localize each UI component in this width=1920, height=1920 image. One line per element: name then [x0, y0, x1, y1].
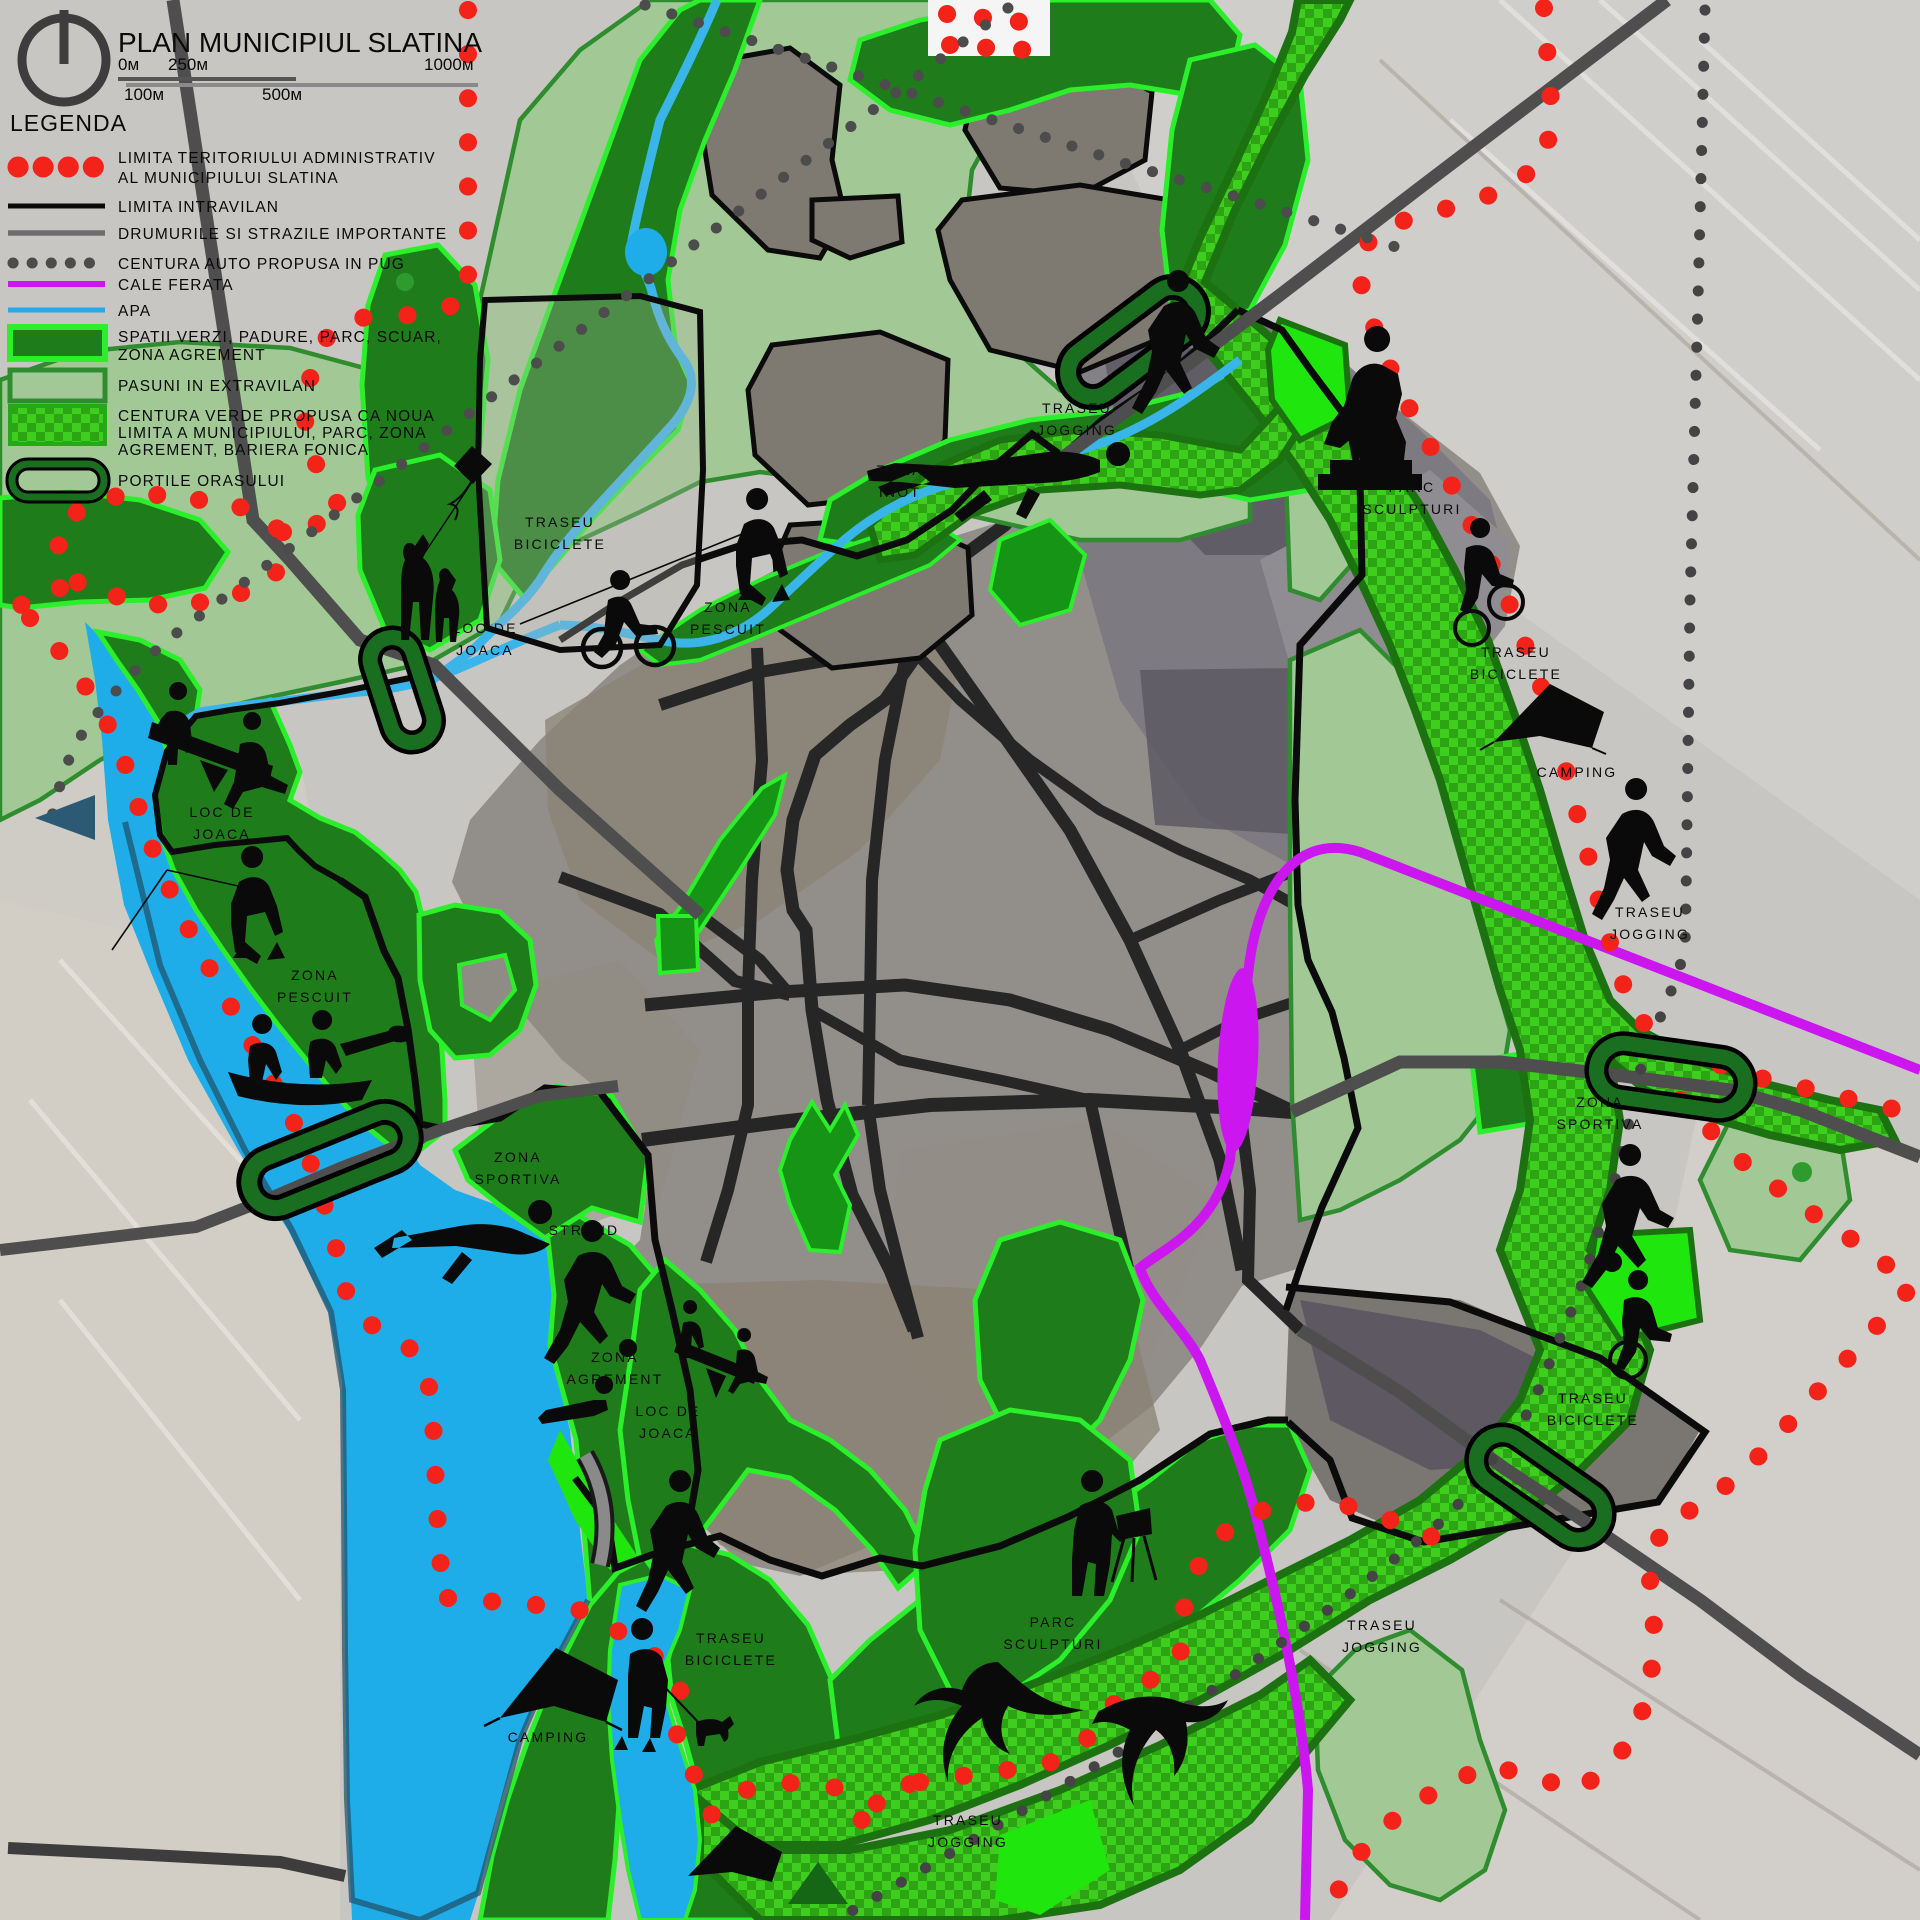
svg-text:CAMPING: CAMPING	[508, 1729, 589, 1745]
svg-text:SPATII VERZI, PADURE, PARC, SC: SPATII VERZI, PADURE, PARC, SCUAR,	[118, 329, 442, 346]
svg-text:JOACA: JOACA	[456, 642, 514, 658]
svg-text:AL MUNICIPIULUI SLATINA: AL MUNICIPIULUI SLATINA	[118, 170, 339, 187]
svg-text:PASUNI IN EXTRAVILAN: PASUNI IN EXTRAVILAN	[118, 378, 316, 395]
svg-text:PESCUIT: PESCUIT	[690, 621, 766, 637]
svg-text:LOC DE: LOC DE	[189, 804, 254, 820]
svg-text:DRUMURILE SI STRAZILE IMPORTAN: DRUMURILE SI STRAZILE IMPORTANTE	[118, 226, 447, 243]
svg-text:LIMITA TERITORIULUI ADMINISTRA: LIMITA TERITORIULUI ADMINISTRATIV	[118, 150, 436, 167]
svg-text:CENTURA AUTO PROPUSA IN PUG: CENTURA AUTO PROPUSA IN PUG	[118, 256, 405, 273]
svg-text:JOGGING: JOGGING	[1610, 926, 1690, 942]
svg-text:ZONA AGREMENT: ZONA AGREMENT	[118, 347, 266, 364]
svg-text:100ᴍ: 100ᴍ	[124, 85, 164, 104]
svg-text:BICICLETE: BICICLETE	[685, 1652, 777, 1668]
svg-text:STRAND: STRAND	[549, 1222, 620, 1238]
svg-text:CENTURA VERDE PROPUSA CA NOUA: CENTURA VERDE PROPUSA CA NOUA	[118, 408, 435, 425]
svg-text:SCULPTURI: SCULPTURI	[1362, 501, 1461, 517]
svg-text:SPORTIVA: SPORTIVA	[1556, 1116, 1643, 1132]
svg-text:TRASEU: TRASEU	[696, 1630, 766, 1646]
svg-text:PARC: PARC	[1030, 1614, 1077, 1630]
svg-text:INOT: INOT	[879, 484, 921, 500]
svg-text:BICICLETE: BICICLETE	[514, 536, 606, 552]
svg-text:0ᴍ: 0ᴍ	[118, 55, 139, 74]
svg-text:JOGGING: JOGGING	[928, 1834, 1008, 1850]
svg-text:LOC DE: LOC DE	[452, 620, 517, 636]
svg-text:TRASEU: TRASEU	[1615, 904, 1685, 920]
svg-text:TRASEU: TRASEU	[1481, 644, 1551, 660]
svg-text:SCULPTURI: SCULPTURI	[1003, 1636, 1102, 1652]
svg-text:JOGGING: JOGGING	[1037, 422, 1117, 438]
svg-text:BICICLETE: BICICLETE	[1547, 1412, 1639, 1428]
svg-text:LIMITA INTRAVILAN: LIMITA INTRAVILAN	[118, 199, 279, 216]
svg-text:AGREMENT: AGREMENT	[567, 1371, 664, 1387]
svg-text:CAMPING: CAMPING	[1537, 764, 1618, 780]
svg-text:JOACA: JOACA	[193, 826, 251, 842]
svg-text:PLAN MUNICIPIUL SLATINA: PLAN MUNICIPIUL SLATINA	[118, 27, 482, 58]
svg-text:ZONA: ZONA	[876, 462, 924, 478]
svg-text:TRASEU: TRASEU	[1347, 1617, 1417, 1633]
svg-text:500ᴍ: 500ᴍ	[262, 85, 302, 104]
svg-text:PESCUIT: PESCUIT	[277, 989, 353, 1005]
svg-text:1000ᴍ: 1000ᴍ	[424, 55, 474, 74]
svg-text:JOACA: JOACA	[639, 1425, 697, 1441]
svg-text:TRASEU: TRASEU	[525, 514, 595, 530]
svg-text:TRASEU: TRASEU	[1558, 1390, 1628, 1406]
svg-text:BICICLETE: BICICLETE	[1470, 666, 1562, 682]
svg-text:LIMITA A MUNICIPIULUI, PARC, Z: LIMITA A MUNICIPIULUI, PARC, ZONA	[118, 425, 427, 442]
svg-text:TRASEU: TRASEU	[933, 1812, 1003, 1828]
svg-text:AGREMENT, BARIERA FONICA: AGREMENT, BARIERA FONICA	[118, 442, 369, 459]
svg-text:JOGGING: JOGGING	[1342, 1639, 1422, 1655]
svg-text:ZONA: ZONA	[704, 599, 752, 615]
svg-text:PORTILE ORASULUI: PORTILE ORASULUI	[118, 473, 285, 490]
svg-text:ZONA: ZONA	[1576, 1094, 1624, 1110]
svg-text:250ᴍ: 250ᴍ	[168, 55, 208, 74]
svg-text:ZONA: ZONA	[494, 1149, 542, 1165]
svg-text:SPORTIVA: SPORTIVA	[474, 1171, 561, 1187]
svg-text:APA: APA	[118, 303, 151, 320]
svg-text:TRASEU: TRASEU	[1042, 400, 1112, 416]
svg-text:PARC: PARC	[1389, 479, 1436, 495]
svg-text:ZONA: ZONA	[591, 1349, 639, 1365]
svg-text:LOC DE: LOC DE	[635, 1403, 700, 1419]
svg-text:LEGENDA: LEGENDA	[10, 110, 127, 136]
svg-text:ZONA: ZONA	[291, 967, 339, 983]
svg-text:CALE FERATA: CALE FERATA	[118, 277, 234, 294]
